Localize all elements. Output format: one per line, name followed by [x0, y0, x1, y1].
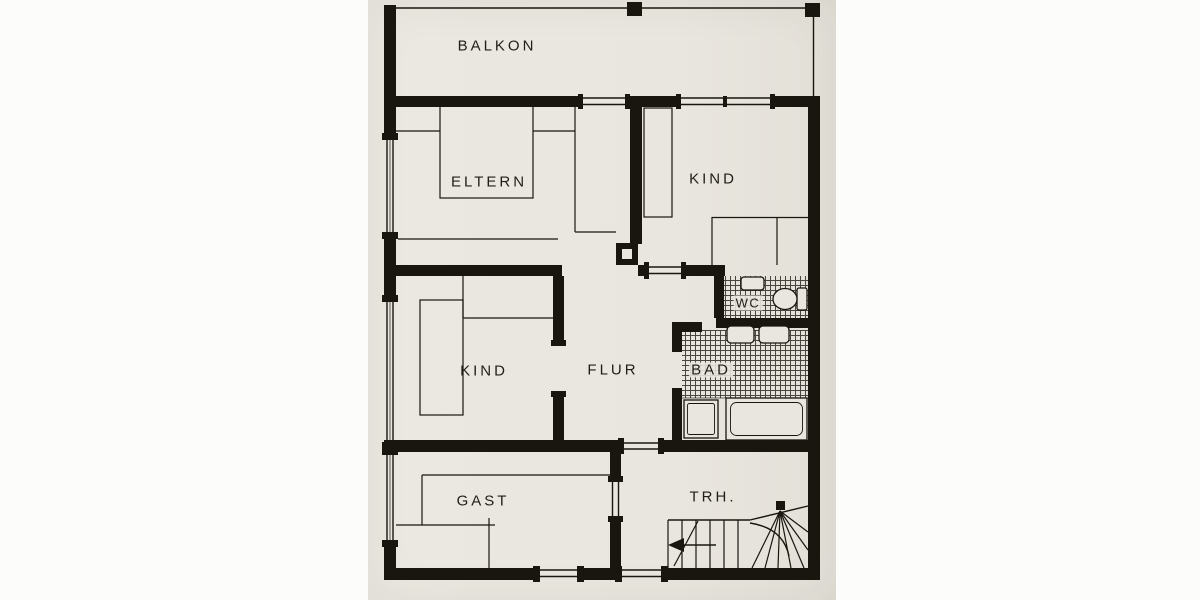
bad-sink-left — [727, 326, 754, 343]
gast-bed — [396, 475, 610, 568]
shower — [684, 400, 718, 438]
room-label-flur: FLUR — [587, 362, 638, 379]
kind-west-bed — [420, 300, 463, 415]
balcony-railing — [390, 2, 820, 96]
window-trh-south — [620, 570, 662, 577]
stair-newel — [776, 501, 785, 510]
balcony-post — [805, 3, 820, 17]
kind-nord-bed — [644, 108, 672, 217]
room-label-kind-west: KIND — [460, 363, 508, 380]
wc-sink — [741, 277, 764, 290]
floorplan-stage: BALKON ELTERN KIND KIND FLUR WC BAD GAST… — [0, 0, 1200, 600]
door-flur-trh — [622, 443, 662, 449]
balcony-post — [627, 2, 642, 16]
bad-sink-right — [759, 326, 789, 343]
room-label-wc: WC — [734, 296, 763, 311]
kind-nord-desk — [712, 218, 808, 266]
window-gast-west — [387, 455, 393, 540]
bathtub — [726, 398, 807, 440]
room-label-bad: BAD — [689, 363, 733, 378]
room-label-eltern: ELTERN — [451, 174, 527, 191]
window-gast-south — [537, 570, 578, 577]
room-label-kind-nord: KIND — [689, 171, 737, 188]
stair-direction-arrow — [668, 521, 716, 566]
window-eltern-west — [387, 140, 393, 232]
floorplan-drawing — [0, 0, 1200, 600]
room-label-balkon: BALKON — [458, 38, 537, 55]
kind-west-wardrobe — [463, 276, 553, 318]
door-kind-nord — [648, 267, 682, 274]
staircase — [668, 501, 808, 568]
room-label-trh: TRH. — [690, 489, 737, 506]
wc-toilet — [773, 288, 807, 310]
window-kind-west — [387, 302, 393, 442]
chimney — [616, 243, 638, 265]
balcony-door — [582, 98, 625, 105]
room-label-gast: GAST — [457, 493, 510, 510]
door-gast — [613, 478, 619, 518]
